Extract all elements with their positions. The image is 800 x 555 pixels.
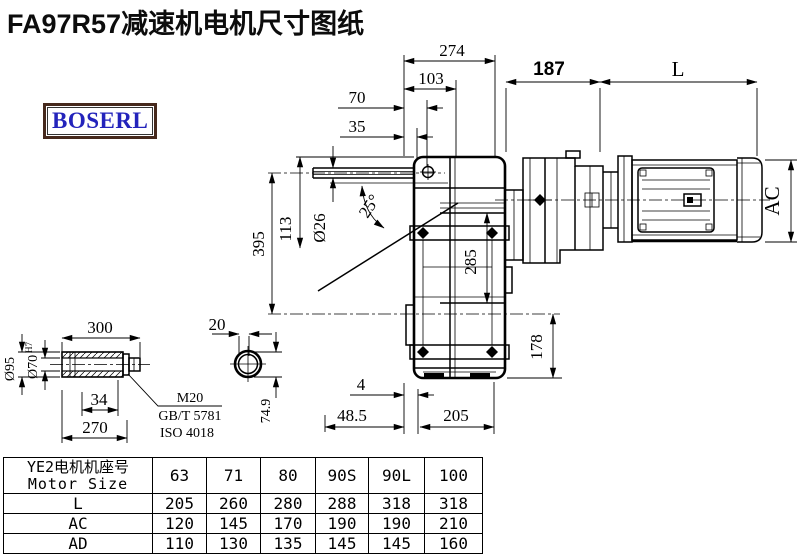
table-header-motor-size: YE2电机机座号 Motor Size (4, 458, 153, 494)
dimension-20: 20 (209, 315, 226, 334)
cell-AD-100: 160 (425, 534, 483, 554)
dimension-187: 187 (533, 59, 565, 80)
row-label-AC: AC (4, 514, 153, 534)
row-label-AD: AD (4, 534, 153, 554)
table-header-row: YE2电机机座号 Motor Size 63 71 80 90S 90L 100 (4, 458, 483, 494)
dimension-d95: Ø95 (3, 357, 18, 381)
cell-AC-63: 120 (153, 514, 207, 534)
cell-L-71: 260 (207, 494, 261, 514)
dimension-70: 70 (349, 88, 366, 107)
dimension-395: 395 (249, 231, 268, 257)
label-m20: M20 (177, 391, 203, 406)
cell-AD-80: 135 (261, 534, 316, 554)
size-90l: 90L (369, 458, 425, 494)
cell-AD-63: 110 (153, 534, 207, 554)
cell-L-63: 205 (153, 494, 207, 514)
header-en: Motor Size (4, 476, 152, 492)
dimension-L: L (672, 57, 685, 81)
table-row-L: L 205 260 280 288 318 318 (4, 494, 483, 514)
label-iso-4018: ISO 4018 (160, 426, 214, 441)
dimension-103: 103 (418, 69, 444, 88)
cell-AC-100: 210 (425, 514, 483, 534)
cell-L-90l: 318 (369, 494, 425, 514)
dimension-angle-25: 25° (355, 191, 384, 221)
cell-L-80: 280 (261, 494, 316, 514)
label-gbt-5781: GB/T 5781 (158, 409, 221, 424)
cell-AD-90l: 145 (369, 534, 425, 554)
dimension-74-9: 74.9 (259, 399, 274, 424)
table-row-AC: AC 120 145 170 190 190 210 (4, 514, 483, 534)
dimension-4: 4 (357, 375, 366, 394)
page: FA97R57减速机电机尺寸图纸 BOSERL (0, 0, 800, 555)
header-cn: YE2电机机座号 (4, 459, 152, 476)
dimension-d70: Ø70 (26, 355, 41, 379)
size-63: 63 (153, 458, 207, 494)
row-label-L: L (4, 494, 153, 514)
dimension-113: 113 (276, 217, 295, 242)
dimension-285: 285 (461, 249, 480, 275)
cell-AC-90l: 190 (369, 514, 425, 534)
dimension-35: 35 (349, 117, 366, 136)
size-90s: 90S (316, 458, 369, 494)
dimension-AC: AC (760, 186, 784, 215)
cell-AD-71: 130 (207, 534, 261, 554)
dimension-34: 34 (91, 390, 109, 409)
cell-AC-71: 145 (207, 514, 261, 534)
motor-size-table: YE2电机机座号 Motor Size 63 71 80 90S 90L 100… (3, 457, 483, 554)
pin-section-view: 20 74.9 (209, 315, 283, 423)
dimension-d70-tolerance: H7 (24, 342, 34, 353)
dimension-d26: Ø26 (310, 213, 329, 242)
cell-AD-90s: 145 (316, 534, 369, 554)
dimension-274: 274 (439, 41, 465, 60)
size-71: 71 (207, 458, 261, 494)
dimension-178: 178 (527, 334, 546, 360)
size-100: 100 (425, 458, 483, 494)
dimension-300: 300 (87, 318, 113, 337)
cell-L-90s: 288 (316, 494, 369, 514)
cell-AC-80: 170 (261, 514, 316, 534)
cell-AC-90s: 190 (316, 514, 369, 534)
cell-L-100: 318 (425, 494, 483, 514)
size-80: 80 (261, 458, 316, 494)
dimension-270: 270 (82, 418, 108, 437)
dimension-205: 205 (443, 406, 469, 425)
motor-side-view (495, 151, 770, 263)
dimension-48-5: 48.5 (337, 406, 367, 425)
shaft-detail-view: M20 GB/T 5781 ISO 4018 300 Ø95 Ø70 H7 (3, 318, 222, 443)
table-row-AD: AD 110 130 135 145 145 160 (4, 534, 483, 554)
